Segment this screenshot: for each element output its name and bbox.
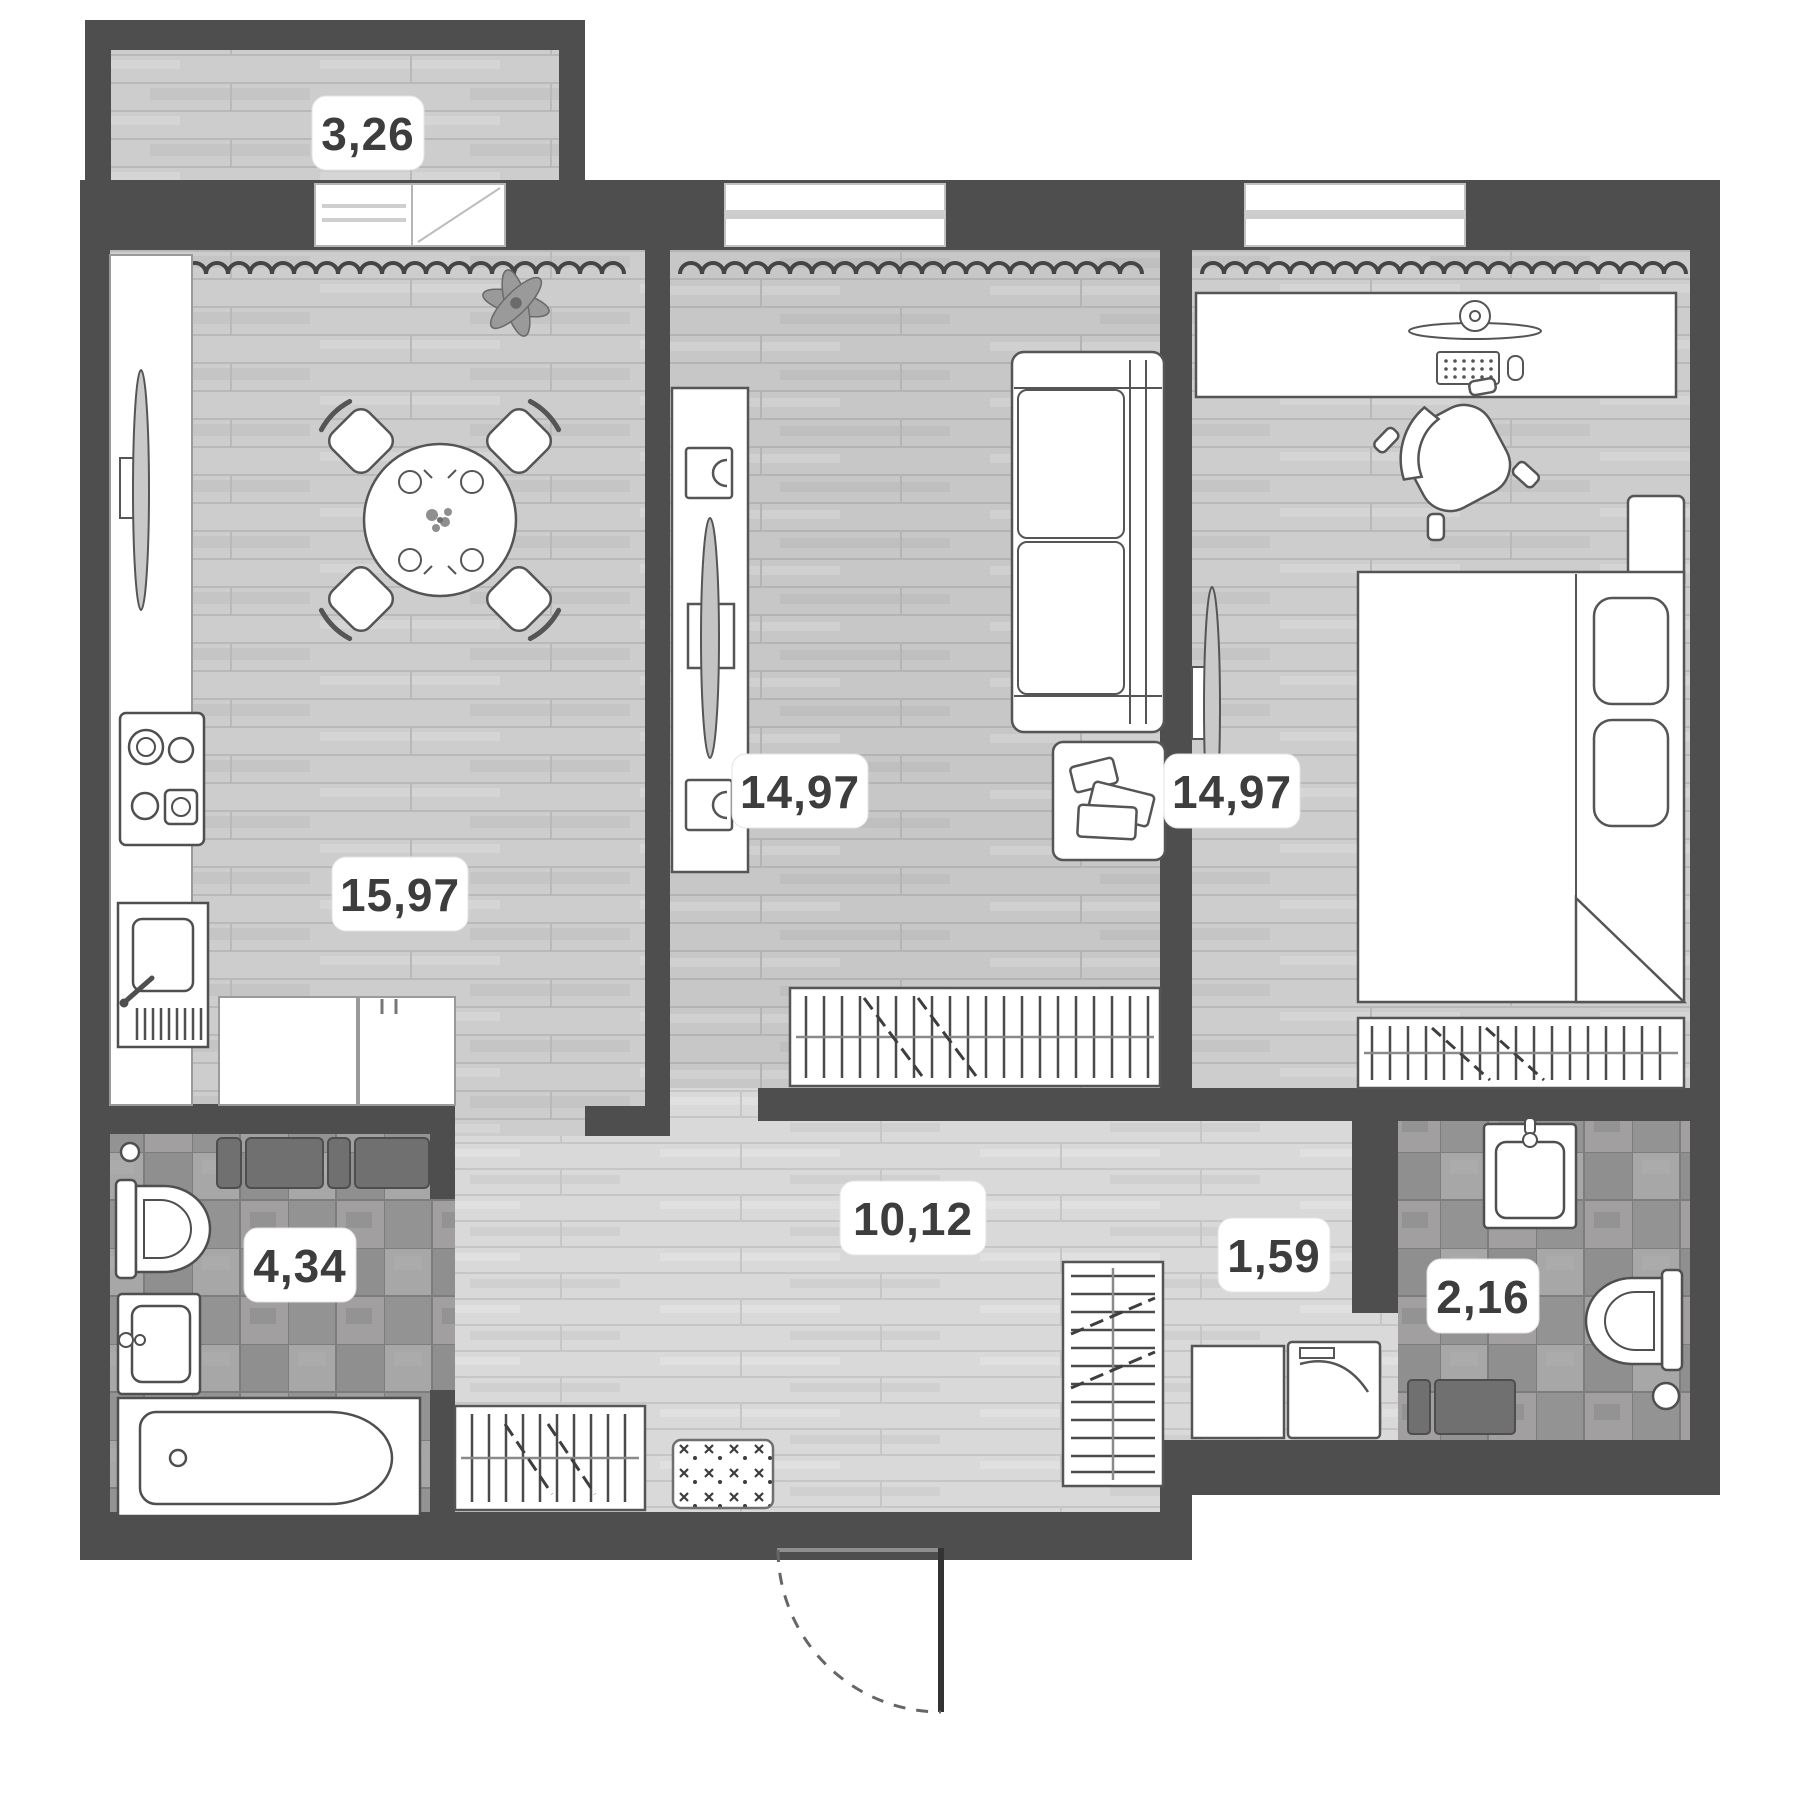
corridor-area-value: 1,59: [1227, 1230, 1321, 1282]
pillow-icon: [1594, 598, 1668, 704]
left-outer-wall: [80, 180, 110, 1560]
kitchen-base-cabinets: [219, 997, 455, 1105]
hallway-bottom-wall: [80, 1512, 1192, 1560]
hallway-area-value: 10,12: [853, 1193, 973, 1245]
corridor-area-label: 1,59: [1218, 1218, 1330, 1292]
kitchen-wall-stub: [585, 1106, 670, 1136]
balcony-area-label: 3,26: [312, 96, 424, 170]
doormat-icon: [673, 1440, 773, 1508]
pillow-icon: [1594, 720, 1668, 826]
bathroom-right-wall-upper: [430, 1104, 455, 1199]
living-room-doorway-floor: [670, 1088, 758, 1138]
stove-icon: [120, 713, 204, 845]
mouse-icon: [1508, 356, 1523, 380]
speaker-icon: [686, 448, 732, 498]
balcony-door-window-unit: [315, 184, 505, 246]
hallway-wardrobe-icon: [455, 1406, 645, 1510]
right-wing-bottom-wall: [1192, 1440, 1720, 1495]
entrance-door-icon: [778, 1548, 944, 1712]
entrance-opening-line: [777, 1548, 942, 1552]
balcony-right-wall: [559, 20, 585, 182]
hallway-step-wall: [1160, 1440, 1192, 1512]
living-room-area-label: 14,97: [732, 754, 868, 828]
washbasin-icon: [118, 1294, 200, 1394]
balcony-left-wall: [85, 20, 111, 182]
bedroom-area-label: 14,97: [1164, 754, 1300, 828]
balcony-top-wall: [85, 20, 585, 50]
tv-screen-icon: [701, 518, 719, 758]
kitchen-area-label: 15,97: [332, 857, 468, 931]
bedroom-wardrobe-icon: [1358, 1018, 1684, 1088]
sofa-icon: [1012, 352, 1164, 732]
bathroom-dark-cabinets: [217, 1138, 429, 1188]
toilet-room-area-value: 2,16: [1436, 1271, 1530, 1323]
cabinet-icon: [1192, 1346, 1284, 1438]
hallway-area-label: 10,12: [840, 1181, 986, 1255]
bed-icon: [1358, 572, 1684, 1002]
kitchen-living-divider-wall: [645, 250, 670, 1110]
floor-plan-drawing: 3,26 15,97 14,97 14,97 10,12 1,59 4,34: [0, 0, 1800, 1800]
bathtub-icon: [118, 1398, 420, 1516]
kitchen-area-value: 15,97: [340, 869, 460, 921]
corridor-toilet-divider-wall: [1352, 1121, 1398, 1313]
bathroom-area-value: 4,34: [253, 1240, 347, 1292]
bedroom-window: [1245, 184, 1465, 246]
side-table-icon: [1053, 742, 1165, 860]
floor-plan-page: 3,26 15,97 14,97 14,97 10,12 1,59 4,34: [0, 0, 1800, 1800]
right-outer-wall: [1690, 180, 1720, 1495]
rooms-bottom-wall: [758, 1088, 1690, 1121]
balcony-area-value: 3,26: [321, 108, 415, 160]
bathroom-right-wall-lower: [430, 1390, 455, 1516]
bedroom-area-value: 14,97: [1172, 766, 1292, 818]
bathroom-top-wall: [105, 1104, 455, 1134]
living-room-window: [725, 184, 945, 246]
tall-wardrobe-icon: [1063, 1262, 1163, 1486]
toilet-sink-icon: [1484, 1118, 1576, 1228]
toilet-room-area-label: 2,16: [1427, 1259, 1539, 1333]
washing-machine-icon: [1288, 1342, 1380, 1438]
kitchen-sink-icon: [118, 903, 208, 1047]
living-room-area-value: 14,97: [740, 766, 860, 818]
toilet-dark-cabinets: [1408, 1380, 1515, 1434]
speaker-icon: [686, 780, 732, 830]
bathroom-area-label: 4,34: [244, 1228, 356, 1302]
desk-icon: [1196, 293, 1676, 397]
living-wardrobe-icon: [790, 988, 1160, 1086]
